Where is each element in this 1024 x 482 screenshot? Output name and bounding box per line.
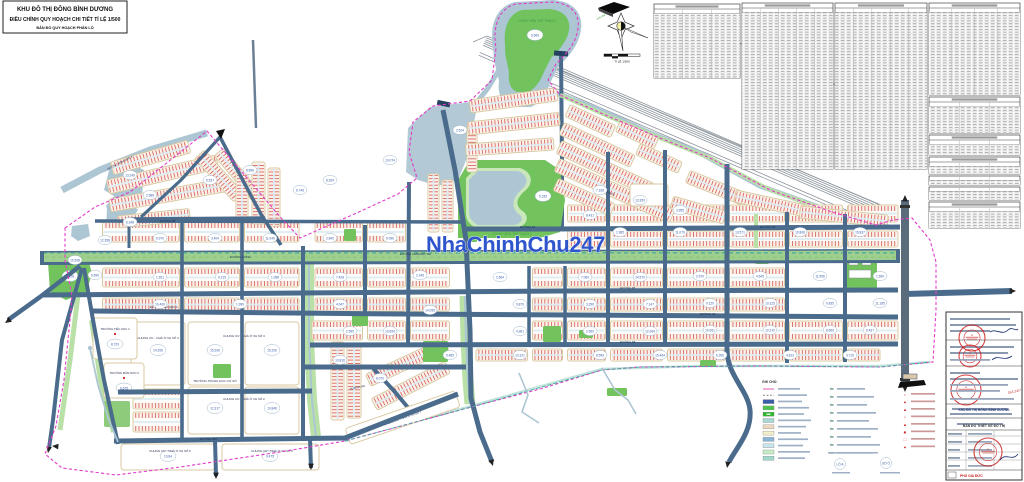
svg-text:ĐƯỜNG D2: ĐƯỜNG D2 <box>760 224 776 229</box>
svg-text:ĐƯỜNG D1: ĐƯỜNG D1 <box>520 224 536 229</box>
svg-text:CHUNG CƯ - NHÀ Ở XH SỐ 5: CHUNG CƯ - NHÀ Ở XH SỐ 5 <box>251 448 293 453</box>
svg-text:10.654: 10.654 <box>385 329 395 333</box>
svg-text:6.348: 6.348 <box>126 220 134 224</box>
svg-text:7.168: 7.168 <box>596 188 604 192</box>
svg-text:4.813: 4.813 <box>786 353 794 357</box>
svg-text:GHI CHÚ:: GHI CHÚ: <box>762 379 777 384</box>
svg-text:BẢN ĐỒ QUY HOẠCH PHÂN LÔ: BẢN ĐỒ QUY HOẠCH PHÂN LÔ <box>36 25 93 30</box>
svg-text:6.596: 6.596 <box>91 273 99 277</box>
svg-text:KHU ĐÔ THỊ ĐÔNG BÌNH DƯƠNG: KHU ĐÔ THỊ ĐÔNG BÌNH DƯƠNG <box>17 5 113 13</box>
svg-text:CHUNG CƯ - NHÀ Ở XH SỐ 3: CHUNG CƯ - NHÀ Ở XH SỐ 3 <box>223 333 265 338</box>
svg-text:11.185: 11.185 <box>875 301 885 305</box>
svg-text:6.666: 6.666 <box>531 33 539 37</box>
svg-text:1.999: 1.999 <box>236 302 244 306</box>
svg-text:3.715: 3.715 <box>846 353 854 357</box>
svg-text:10.074: 10.074 <box>385 158 395 162</box>
svg-text:13.249: 13.249 <box>125 173 135 177</box>
svg-text:▲: ▲ <box>903 407 907 412</box>
svg-text:10.061: 10.061 <box>705 328 715 332</box>
svg-text:15.206: 15.206 <box>267 348 277 352</box>
svg-text:★: ★ <box>987 448 989 451</box>
svg-text:11.049: 11.049 <box>265 236 275 240</box>
svg-text:2.595: 2.595 <box>346 329 354 333</box>
svg-text:ĐƯỜNG N10: ĐƯỜNG N10 <box>200 436 217 441</box>
svg-text:7.060: 7.060 <box>581 275 589 279</box>
svg-text:ĐƯỜNG N5: ĐƯỜNG N5 <box>620 285 636 290</box>
svg-text:14.095: 14.095 <box>425 308 435 312</box>
svg-text:8.896: 8.896 <box>246 168 254 172</box>
svg-text:7.147: 7.147 <box>646 302 654 306</box>
svg-text:ĐƯỜNG CHÍNH: ĐƯỜNG CHÍNH <box>230 254 251 259</box>
svg-text:PHÚ GIA ĐỨC: PHÚ GIA ĐỨC <box>960 473 983 478</box>
svg-text:3.404: 3.404 <box>211 236 219 240</box>
svg-text:TRƯỜNG TRUNG HỌC CƠ SỞ: TRƯỜNG TRUNG HỌC CƠ SỞ <box>193 378 237 383</box>
svg-text:BẢN ĐỒ THIẾT KẾ ĐÔ THỊ: BẢN ĐỒ THIẾT KẾ ĐÔ THỊ <box>963 423 1005 428</box>
svg-text:1.985: 1.985 <box>616 230 624 234</box>
svg-text:10.508: 10.508 <box>70 258 80 262</box>
svg-text:2.840: 2.840 <box>326 236 334 240</box>
svg-text:3.955: 3.955 <box>676 208 684 212</box>
svg-text:★: ★ <box>965 386 967 389</box>
svg-text:2.560: 2.560 <box>586 329 594 333</box>
svg-text:CÔNG VIÊN THỂ THAO 2: CÔNG VIÊN THỂ THAO 2 <box>518 18 556 23</box>
svg-text:14.579: 14.579 <box>635 275 645 279</box>
svg-text:12.358: 12.358 <box>100 238 110 242</box>
svg-text:8.696: 8.696 <box>826 328 834 332</box>
svg-text:CHUNG CƯ - NHÀ Ở XH SỐ 2: CHUNG CƯ - NHÀ Ở XH SỐ 2 <box>223 396 265 401</box>
svg-text:13.321: 13.321 <box>515 353 525 357</box>
svg-text:9.879: 9.879 <box>516 302 524 306</box>
svg-text:2.588: 2.588 <box>146 193 154 197</box>
svg-text:10.210: 10.210 <box>765 328 775 332</box>
svg-text:CHUNG CƯ - NHÀ Ở XH SỐ 6: CHUNG CƯ - NHÀ Ở XH SỐ 6 <box>149 448 191 453</box>
svg-text:1.931: 1.931 <box>156 275 164 279</box>
svg-text:TRƯỜNG MẦM NON 3: TRƯỜNG MẦM NON 3 <box>109 370 139 375</box>
svg-text:11.596: 11.596 <box>815 274 825 278</box>
svg-text:14.206: 14.206 <box>153 348 163 352</box>
svg-text:4.381: 4.381 <box>516 329 524 333</box>
svg-text:8.720: 8.720 <box>111 342 119 346</box>
svg-text:6.306: 6.306 <box>716 353 724 357</box>
svg-text:NhaChinhChu247: NhaChinhChu247 <box>426 232 605 257</box>
svg-text:SỐ Ô: SỐ Ô <box>882 460 890 465</box>
svg-text:10.846: 10.846 <box>267 406 277 410</box>
svg-text:11.079: 11.079 <box>675 230 685 234</box>
svg-text:8.431: 8.431 <box>586 213 594 217</box>
svg-text:9.437: 9.437 <box>866 328 874 332</box>
svg-text:3.296: 3.296 <box>586 302 594 306</box>
svg-text:9.475: 9.475 <box>266 454 274 458</box>
svg-text:2.970: 2.970 <box>696 274 704 278</box>
svg-text:9.120: 9.120 <box>706 301 714 305</box>
svg-text:7.428: 7.428 <box>336 275 344 279</box>
svg-text:6.746: 6.746 <box>296 188 304 192</box>
svg-text:KHU ĐÔ THỊ ĐÔNG BÌNH DƯƠNG: KHU ĐÔ THỊ ĐÔNG BÌNH DƯƠNG <box>958 407 1010 412</box>
svg-text:CHUNG CƯ - NHÀ Ở XH SỐ 4: CHUNG CƯ - NHÀ Ở XH SỐ 4 <box>137 335 179 340</box>
svg-text:8.294: 8.294 <box>326 178 334 182</box>
svg-text:★: ★ <box>971 334 973 337</box>
svg-text:15.206: 15.206 <box>210 348 220 352</box>
svg-text:4.047: 4.047 <box>336 302 344 306</box>
svg-text:10.84: 10.84 <box>164 454 172 458</box>
svg-text:10.406: 10.406 <box>155 302 165 306</box>
svg-text:10.808: 10.808 <box>795 230 805 234</box>
svg-text:9.835: 9.835 <box>826 301 834 305</box>
svg-text:6.970: 6.970 <box>156 236 164 240</box>
svg-text:2.524: 2.524 <box>456 128 464 132</box>
svg-text:▲: ▲ <box>903 422 907 427</box>
svg-text:★: ★ <box>969 352 971 355</box>
svg-text:LÔ A: LÔ A <box>836 461 844 466</box>
svg-text:2.246: 2.246 <box>416 273 424 277</box>
svg-text:2.564: 2.564 <box>496 275 504 279</box>
svg-text:15.837: 15.837 <box>855 230 865 234</box>
svg-text:15.464: 15.464 <box>655 353 665 357</box>
svg-text:ĐƯỜNG D8: ĐƯỜNG D8 <box>160 218 176 223</box>
svg-text:5.485: 5.485 <box>446 353 454 357</box>
svg-text:10.816: 10.816 <box>335 358 345 362</box>
svg-text:ĐIỀU CHỈNH QUY HOẠCH CHI TIẾT: ĐIỀU CHỈNH QUY HOẠCH CHI TIẾT TỈ LỆ 1/50… <box>10 15 121 23</box>
svg-text:12.064: 12.064 <box>645 329 655 333</box>
svg-text:ĐƯỜNG N8: ĐƯỜNG N8 <box>620 339 636 344</box>
svg-text:4.645: 4.645 <box>756 274 764 278</box>
svg-text:1.590: 1.590 <box>876 274 884 278</box>
svg-text:12.317: 12.317 <box>210 406 220 410</box>
svg-text:TRƯỜNG TIỂU HỌC 4: TRƯỜNG TIỂU HỌC 4 <box>100 326 130 331</box>
svg-text:13.350: 13.350 <box>635 198 645 202</box>
svg-text:8.599: 8.599 <box>596 353 604 357</box>
svg-text:TỈ LỆ 1/500: TỈ LỆ 1/500 <box>614 59 630 64</box>
svg-text:ĐƯỜNG N6: ĐƯỜNG N6 <box>700 311 716 316</box>
svg-text:13.571: 13.571 <box>735 230 745 234</box>
svg-text:5.537: 5.537 <box>206 178 214 182</box>
svg-text:10.315: 10.315 <box>765 301 775 305</box>
svg-text:1.088: 1.088 <box>271 275 279 279</box>
svg-text:5.155: 5.155 <box>539 194 547 198</box>
svg-text:8.070: 8.070 <box>376 376 384 380</box>
svg-text:9.219: 9.219 <box>218 275 226 279</box>
svg-text:9.096: 9.096 <box>386 236 394 240</box>
